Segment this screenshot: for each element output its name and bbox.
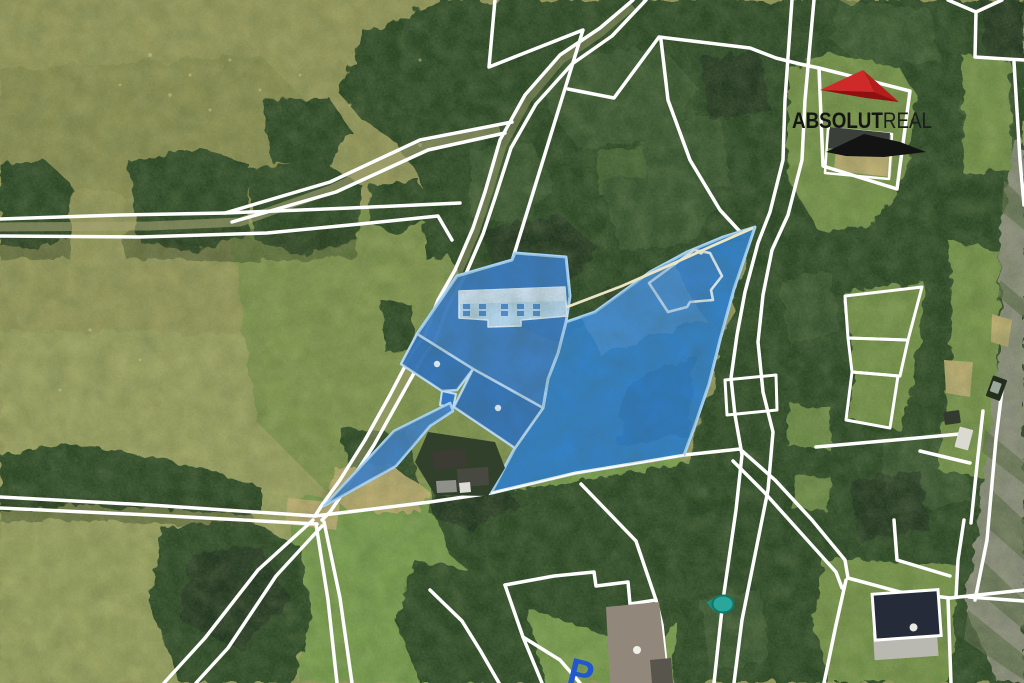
svg-text:ABSOLUTREAL: ABSOLUTREAL <box>792 108 932 133</box>
